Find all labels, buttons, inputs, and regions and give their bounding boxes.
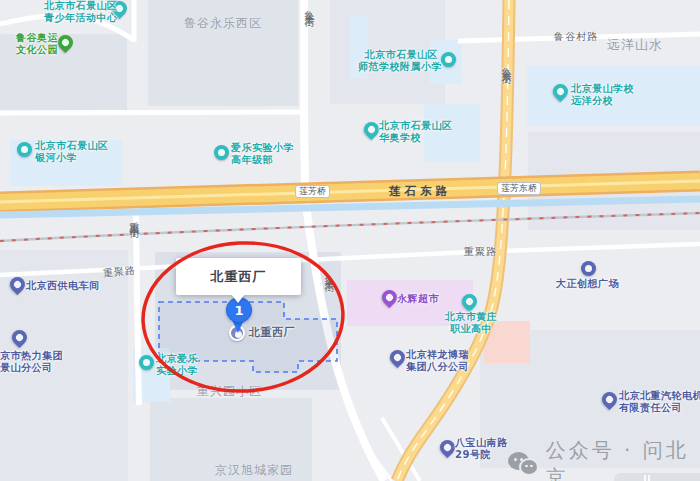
map-canvas[interactable]: 北京市石景山区青少年活动中心鲁谷奥运文化公园北京市石景山区银河小学爱乐实验小学高… — [0, 0, 700, 481]
wechat-icon — [508, 451, 538, 478]
red-highlight-ellipse — [139, 238, 346, 396]
highlight-ellipse-layer — [0, 0, 700, 481]
cut-off-logo-fragment — [614, 473, 700, 481]
